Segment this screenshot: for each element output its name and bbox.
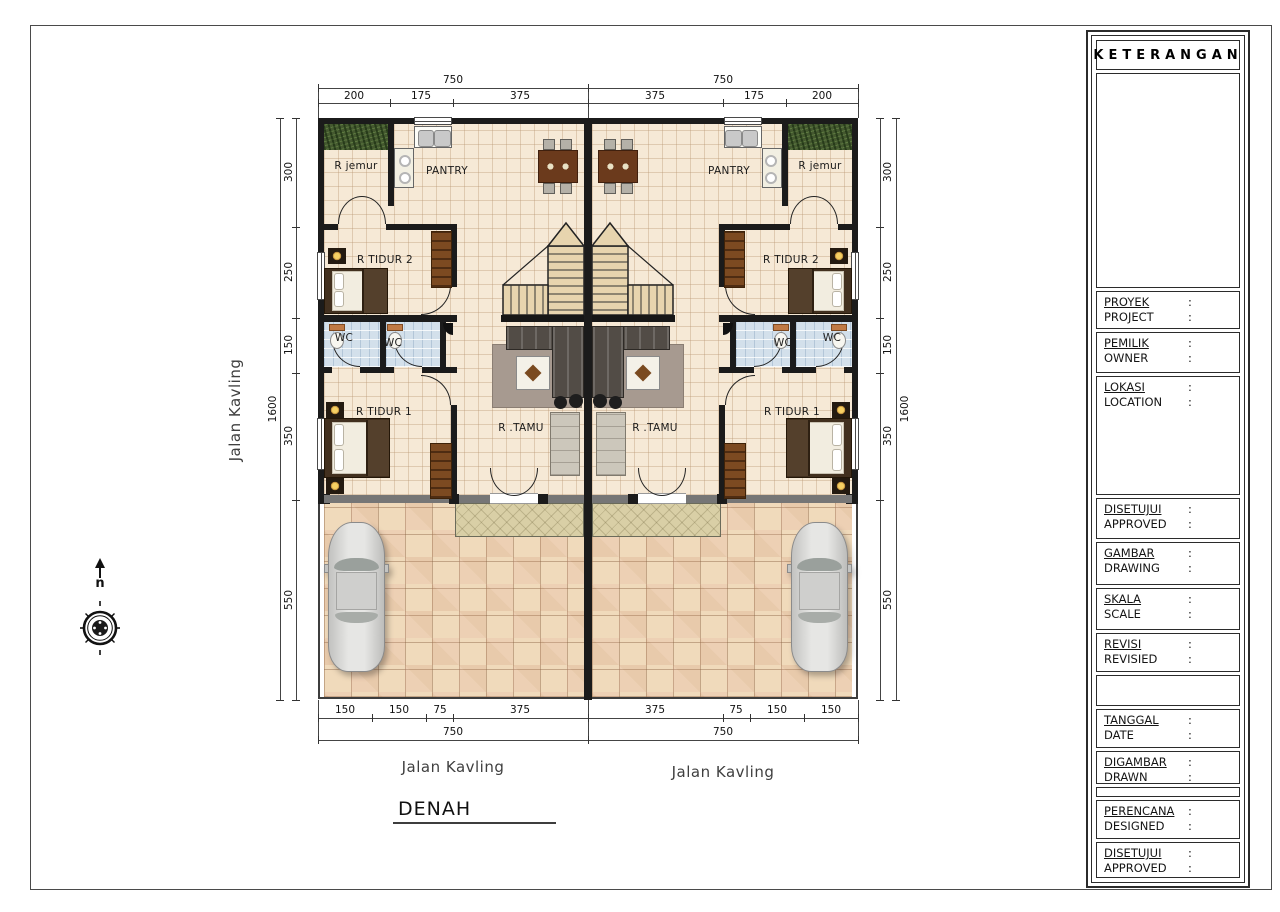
title-block-row-perencana: PERENCANA: DESIGNED: <box>1096 800 1240 839</box>
drawing-sheet: R jemur PANTRY R TIDUR 2 WC WC R TIDUR 1… <box>0 0 1280 912</box>
window-icon <box>414 117 452 125</box>
room-label-r-tidur2-left: R TIDUR 2 <box>357 254 413 266</box>
title-block-row-proyek: PROYEK: PROJECT: <box>1096 291 1240 329</box>
dining-set-right <box>598 139 638 194</box>
room-label-wc-left-1: WC <box>335 332 353 344</box>
title-block-blank-box <box>1096 73 1240 288</box>
bed-bedroom2-right <box>788 268 852 314</box>
room-label-r-jemur-left: R jemur <box>334 160 377 172</box>
living-set-left <box>490 326 584 476</box>
title-block-row-digambar: DIGAMBAR: DRAWN: <box>1096 751 1240 784</box>
room-label-r-tamu-right: R .TAMU <box>632 422 678 434</box>
title-block-row-tanggal: TANGGAL: DATE: <box>1096 709 1240 748</box>
car-top-view-right <box>791 522 848 672</box>
dim-bottom-total-1: 750 <box>443 726 463 738</box>
bed-bedroom1-left <box>324 418 390 478</box>
title-block-row-skala: SKALA: SCALE: <box>1096 588 1240 630</box>
stove-left <box>394 148 414 188</box>
kitchen-sink-right <box>724 126 762 148</box>
nightstand-lamp <box>832 402 850 418</box>
dining-set-left <box>538 139 578 194</box>
window-icon <box>851 252 859 300</box>
window-icon <box>724 117 762 125</box>
grass-patch-right <box>788 124 852 150</box>
room-label-wc-right-2: WC <box>774 337 792 349</box>
stove-right <box>762 148 782 188</box>
dim-bottom-total-2: 750 <box>713 726 733 738</box>
dim-top-total-1: 750 <box>443 74 463 86</box>
wardrobe <box>430 443 452 499</box>
street-label-bottom-right: Jalan Kavling <box>672 763 775 781</box>
dim-left-total: 1600 <box>267 396 279 423</box>
street-label-bottom-left: Jalan Kavling <box>402 758 505 776</box>
porch-left <box>455 503 584 537</box>
title-block-row-disetujui-2: DISETUJUI: APPROVED: <box>1096 842 1240 878</box>
grass-patch-left <box>324 124 388 150</box>
title-block-header: KETERANGAN <box>1096 40 1240 70</box>
dim-right-total: 1600 <box>899 396 911 423</box>
title-block: KETERANGAN PROYEK: PROJECT: PEMILIK: OWN… <box>1086 30 1250 888</box>
drawing-title: DENAH <box>398 798 471 820</box>
room-label-pantry-left: PANTRY <box>426 165 468 177</box>
title-block-row-disetujui-1: DISETUJUI: APPROVED: <box>1096 498 1240 539</box>
car-top-view-left <box>328 522 385 672</box>
title-block-row-pemilik: PEMILIK: OWNER: <box>1096 332 1240 373</box>
staircase-right <box>590 218 688 322</box>
north-label: n <box>92 576 108 591</box>
wardrobe <box>724 231 745 288</box>
title-block-row-revisi: REVISI: REVISIED: <box>1096 633 1240 672</box>
window-icon <box>851 418 859 470</box>
dim-top-total-2: 750 <box>713 74 733 86</box>
compass-icon <box>80 556 120 656</box>
room-label-r-tamu-left: R .TAMU <box>498 422 544 434</box>
room-label-wc-right-1: WC <box>823 332 841 344</box>
title-block-blank-thin <box>1096 787 1240 797</box>
bed-bedroom1-right <box>786 418 852 478</box>
kitchen-sink-left <box>414 126 452 148</box>
title-block-row-gambar: GAMBAR: DRAWING: <box>1096 542 1240 585</box>
drawing-title-underline <box>393 822 556 824</box>
room-label-pantry-right: PANTRY <box>708 165 750 177</box>
nightstand-lamp <box>326 478 344 494</box>
room-label-r-jemur-right: R jemur <box>798 160 841 172</box>
porch-right <box>592 503 721 537</box>
nightstand-lamp <box>830 248 848 264</box>
wardrobe <box>431 231 452 288</box>
nightstand-lamp <box>832 478 850 494</box>
room-label-r-tidur2-right: R TIDUR 2 <box>763 254 819 266</box>
title-block-row-lokasi: LOKASI: LOCATION: <box>1096 376 1240 495</box>
staircase-left <box>488 218 586 322</box>
room-label-r-tidur1-left: R TIDUR 1 <box>356 406 412 418</box>
wardrobe <box>724 443 746 499</box>
nightstand-lamp <box>326 402 344 418</box>
room-label-r-tidur1-right: R TIDUR 1 <box>764 406 820 418</box>
room-label-wc-left-2: WC <box>384 337 402 349</box>
living-set-right <box>592 326 686 476</box>
nightstand-lamp <box>328 248 346 264</box>
title-block-blank-row <box>1096 675 1240 706</box>
street-label-left: Jalan Kavling <box>226 359 244 462</box>
bed-bedroom2-left <box>324 268 388 314</box>
